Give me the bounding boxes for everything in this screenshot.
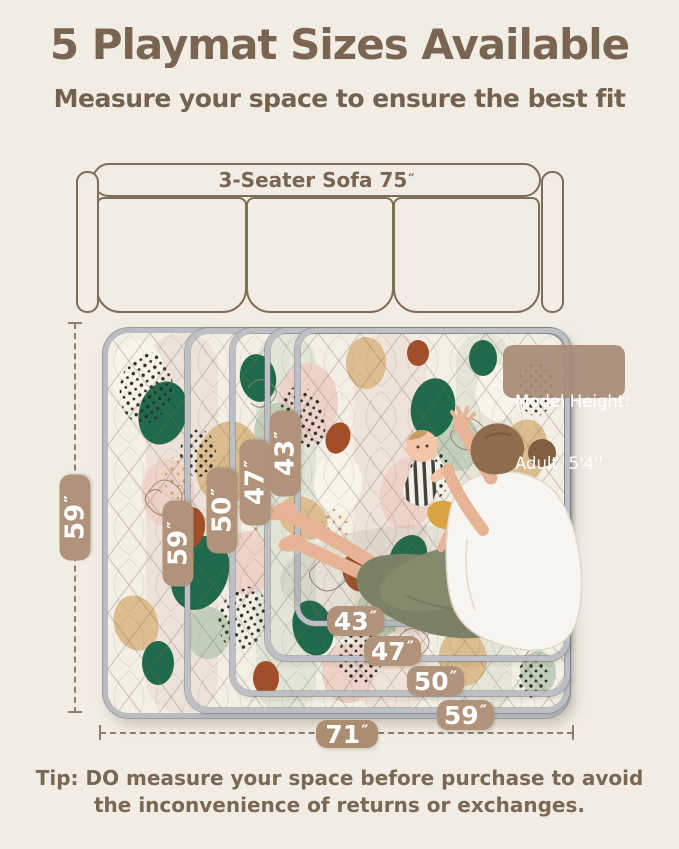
mat-width-badge-43: 43″	[327, 606, 384, 636]
dimension-tick	[68, 322, 82, 324]
total-height-badge-59: 59″	[60, 475, 91, 561]
mat-width-badge-59: 59″	[437, 700, 494, 730]
dim-value: 59	[163, 530, 193, 566]
dim-unit: ″	[165, 521, 185, 529]
sofa-seat-cushion	[393, 197, 540, 313]
page-title: 5 Playmat Sizes Available	[0, 20, 679, 69]
sofa-seat-cushion	[96, 197, 247, 313]
sofa-armrest-left	[76, 171, 99, 313]
dim-value: 50	[414, 667, 449, 696]
dim-unit: ″	[272, 431, 292, 439]
dim-unit: ″	[361, 722, 368, 741]
dimension-tick	[99, 725, 101, 740]
page-subtitle: Measure your space to ensure the best fi…	[0, 84, 679, 113]
dim-value: 59	[444, 701, 479, 730]
model-height-line1: Model Height:	[515, 392, 625, 413]
model-height-badge: Model Height: Adult 5'4''	[503, 345, 625, 398]
dim-value: 71	[325, 720, 360, 749]
dim-unit: ″	[62, 495, 82, 503]
mat-height-badge-50: 50″	[207, 468, 238, 554]
mat-height-badge-43: 43″	[270, 411, 301, 497]
dim-value: 47	[371, 637, 406, 666]
dim-value: 43	[270, 440, 300, 476]
sofa-backrest: 3-Seater Sofa 75″	[92, 163, 541, 197]
dim-value: 50	[207, 497, 237, 533]
sofa-label: 3-Seater Sofa 75	[218, 168, 407, 192]
dim-unit: ″	[370, 608, 377, 627]
dimension-tick	[68, 711, 82, 713]
dim-value: 47	[240, 469, 270, 505]
dim-value: 43	[334, 607, 369, 636]
dim-unit: ″	[480, 702, 487, 721]
sofa-seat-cushion	[246, 197, 394, 313]
dimension-tick	[572, 725, 574, 740]
tip-line2: the inconvenience of returns or exchange…	[0, 792, 679, 819]
tip-text: Tip: DO measure your space before purcha…	[0, 765, 679, 819]
dim-unit: ″	[242, 460, 262, 468]
mat-width-badge-47: 47″	[364, 636, 421, 666]
model-height-line2: Adult 5'4''	[515, 454, 625, 475]
total-width-badge-71: 71″	[316, 720, 378, 748]
dim-unit: ″	[209, 488, 229, 496]
mat-height-badge-47: 47″	[240, 440, 271, 526]
dim-unit: ″	[450, 668, 457, 687]
dim-value: 59	[60, 504, 90, 540]
mat-height-badge-59: 59″	[163, 501, 194, 587]
playmat-size-infographic: 5 Playmat Sizes Available Measure your s…	[0, 0, 679, 849]
tip-line1: Tip: DO measure your space before purcha…	[0, 765, 679, 792]
sofa-armrest-right	[541, 171, 564, 313]
dim-unit: ″	[407, 638, 414, 657]
mat-width-badge-50: 50″	[407, 666, 464, 696]
sofa-label-unit: ″	[408, 172, 414, 188]
